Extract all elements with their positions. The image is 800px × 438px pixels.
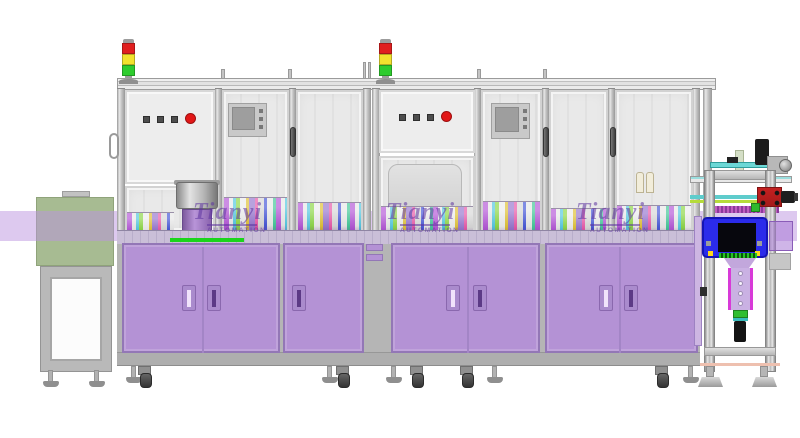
cabinet-handle <box>599 285 613 311</box>
frame-column <box>215 88 222 232</box>
green-led-strip <box>719 253 757 258</box>
machinery-strip <box>298 202 361 231</box>
frame-column <box>289 88 296 232</box>
cabinet-handle <box>473 285 487 311</box>
station-back-panel <box>694 216 702 346</box>
leveling-foot-base <box>322 377 338 383</box>
door-handle <box>543 127 549 157</box>
cabinet-door-split <box>202 247 204 353</box>
table-green-edge <box>170 238 244 242</box>
machinery-strip <box>483 201 540 232</box>
station-foot-stem <box>760 366 768 377</box>
camera-window <box>718 223 756 252</box>
automation-line-render: Tianyi AUTOMATION Tianyi AUTOMATION Tian… <box>0 0 800 438</box>
hmi-key <box>523 109 527 113</box>
panel2-estop-button <box>441 111 452 122</box>
frame-column <box>474 88 481 232</box>
station-foot-base <box>752 377 777 387</box>
cabinet-door-split <box>467 247 469 353</box>
adjust-knob-tip <box>794 193 798 201</box>
motor-knob <box>779 159 792 172</box>
bowl-feeder <box>176 182 218 209</box>
frame-stub <box>543 69 547 79</box>
leveling-foot-base <box>487 377 503 383</box>
hmi-key <box>523 125 527 129</box>
hmi-key <box>523 117 527 121</box>
column-hole <box>738 281 743 286</box>
tower-base <box>119 79 138 84</box>
control-panel-1 <box>125 90 215 184</box>
leveling-foot-base <box>683 377 699 383</box>
panel2-button-2 <box>413 114 420 121</box>
yellow-pad <box>708 251 713 256</box>
signal-lamp-green <box>122 65 135 76</box>
panel2-button-3 <box>427 114 434 121</box>
signal-tower-2 <box>376 39 396 84</box>
gripper-green-block <box>733 310 748 318</box>
hmi-screen-1 <box>232 107 255 130</box>
red-clamp-block <box>757 187 782 207</box>
signal-lamp-red <box>379 43 392 54</box>
housing-bolt <box>757 241 762 246</box>
cabinet-door-split <box>619 247 621 353</box>
side-gray-box <box>769 253 791 270</box>
junction-block <box>366 254 383 261</box>
frame-stub <box>368 62 371 79</box>
panel1-button-2 <box>157 116 164 123</box>
frame-top-rail <box>117 78 716 90</box>
door-handle <box>290 127 296 157</box>
station-foot-base <box>698 377 723 387</box>
panel1-estop-button <box>185 113 196 124</box>
green-cube <box>751 203 760 212</box>
station-foot-stem <box>706 366 714 377</box>
gripper-column <box>728 268 753 310</box>
hmi-key <box>259 117 263 121</box>
cabinet-handle <box>446 285 460 311</box>
caster-wheel <box>460 366 473 375</box>
hmi-key <box>259 125 263 129</box>
frame-stub <box>363 62 366 79</box>
leveling-foot-base <box>386 377 402 383</box>
hmi-key <box>259 109 263 113</box>
adjust-knob <box>781 191 795 203</box>
hmi-screen-2 <box>495 107 519 132</box>
caster-wheel <box>410 366 423 375</box>
cabinet-handle <box>182 285 196 311</box>
control-panel-2 <box>379 90 475 153</box>
column-hole <box>738 291 743 296</box>
base-rail <box>117 352 700 366</box>
caster-wheel <box>138 366 151 375</box>
exterior-handle-loop <box>109 133 119 159</box>
machinery-strip <box>551 208 606 232</box>
cabinet-d <box>545 243 698 353</box>
cabinet-handle <box>207 285 221 311</box>
panel2-button-1 <box>399 114 406 121</box>
panel1-button-3 <box>171 116 178 123</box>
signal-lamp-red <box>122 43 135 54</box>
plate-block <box>727 157 738 163</box>
frame-stub <box>288 69 292 79</box>
station-post-left <box>704 170 715 372</box>
frame-column <box>117 88 125 232</box>
signal-lamp-yellow <box>379 54 392 65</box>
signal-tower-1 <box>119 39 139 84</box>
machinery-strip <box>617 205 691 232</box>
reagent-bottle <box>636 172 644 193</box>
column-hole <box>738 301 743 306</box>
purple-glass-panel <box>769 221 793 251</box>
caster-wheel <box>336 366 349 375</box>
sensor-bracket <box>700 287 707 296</box>
frame-stub <box>477 69 481 79</box>
signal-lamp-yellow <box>122 54 135 65</box>
housing-bolt <box>706 241 711 246</box>
frame-column <box>363 88 371 232</box>
frame-stub <box>221 69 225 79</box>
reagent-bottle <box>646 172 654 193</box>
cabinet-handle <box>624 285 638 311</box>
junction-block <box>366 244 383 251</box>
cabinet-a <box>122 243 280 353</box>
gripper-tip <box>734 321 746 342</box>
signal-lamp-green <box>379 65 392 76</box>
frame-column <box>692 88 700 232</box>
station-bottom-cross <box>704 347 776 356</box>
frame-column <box>608 88 615 232</box>
cabinet-c <box>391 243 540 353</box>
panel1-button-1 <box>143 116 150 123</box>
machinery-strip <box>381 206 473 232</box>
tower-base <box>376 79 395 84</box>
machinery-strip <box>224 197 287 231</box>
machine-layer <box>0 0 800 438</box>
column-hole <box>738 271 743 276</box>
caster-wheel <box>655 366 668 375</box>
cabinet-handle <box>292 285 306 311</box>
frame-column <box>542 88 549 232</box>
door-handle <box>610 127 616 157</box>
